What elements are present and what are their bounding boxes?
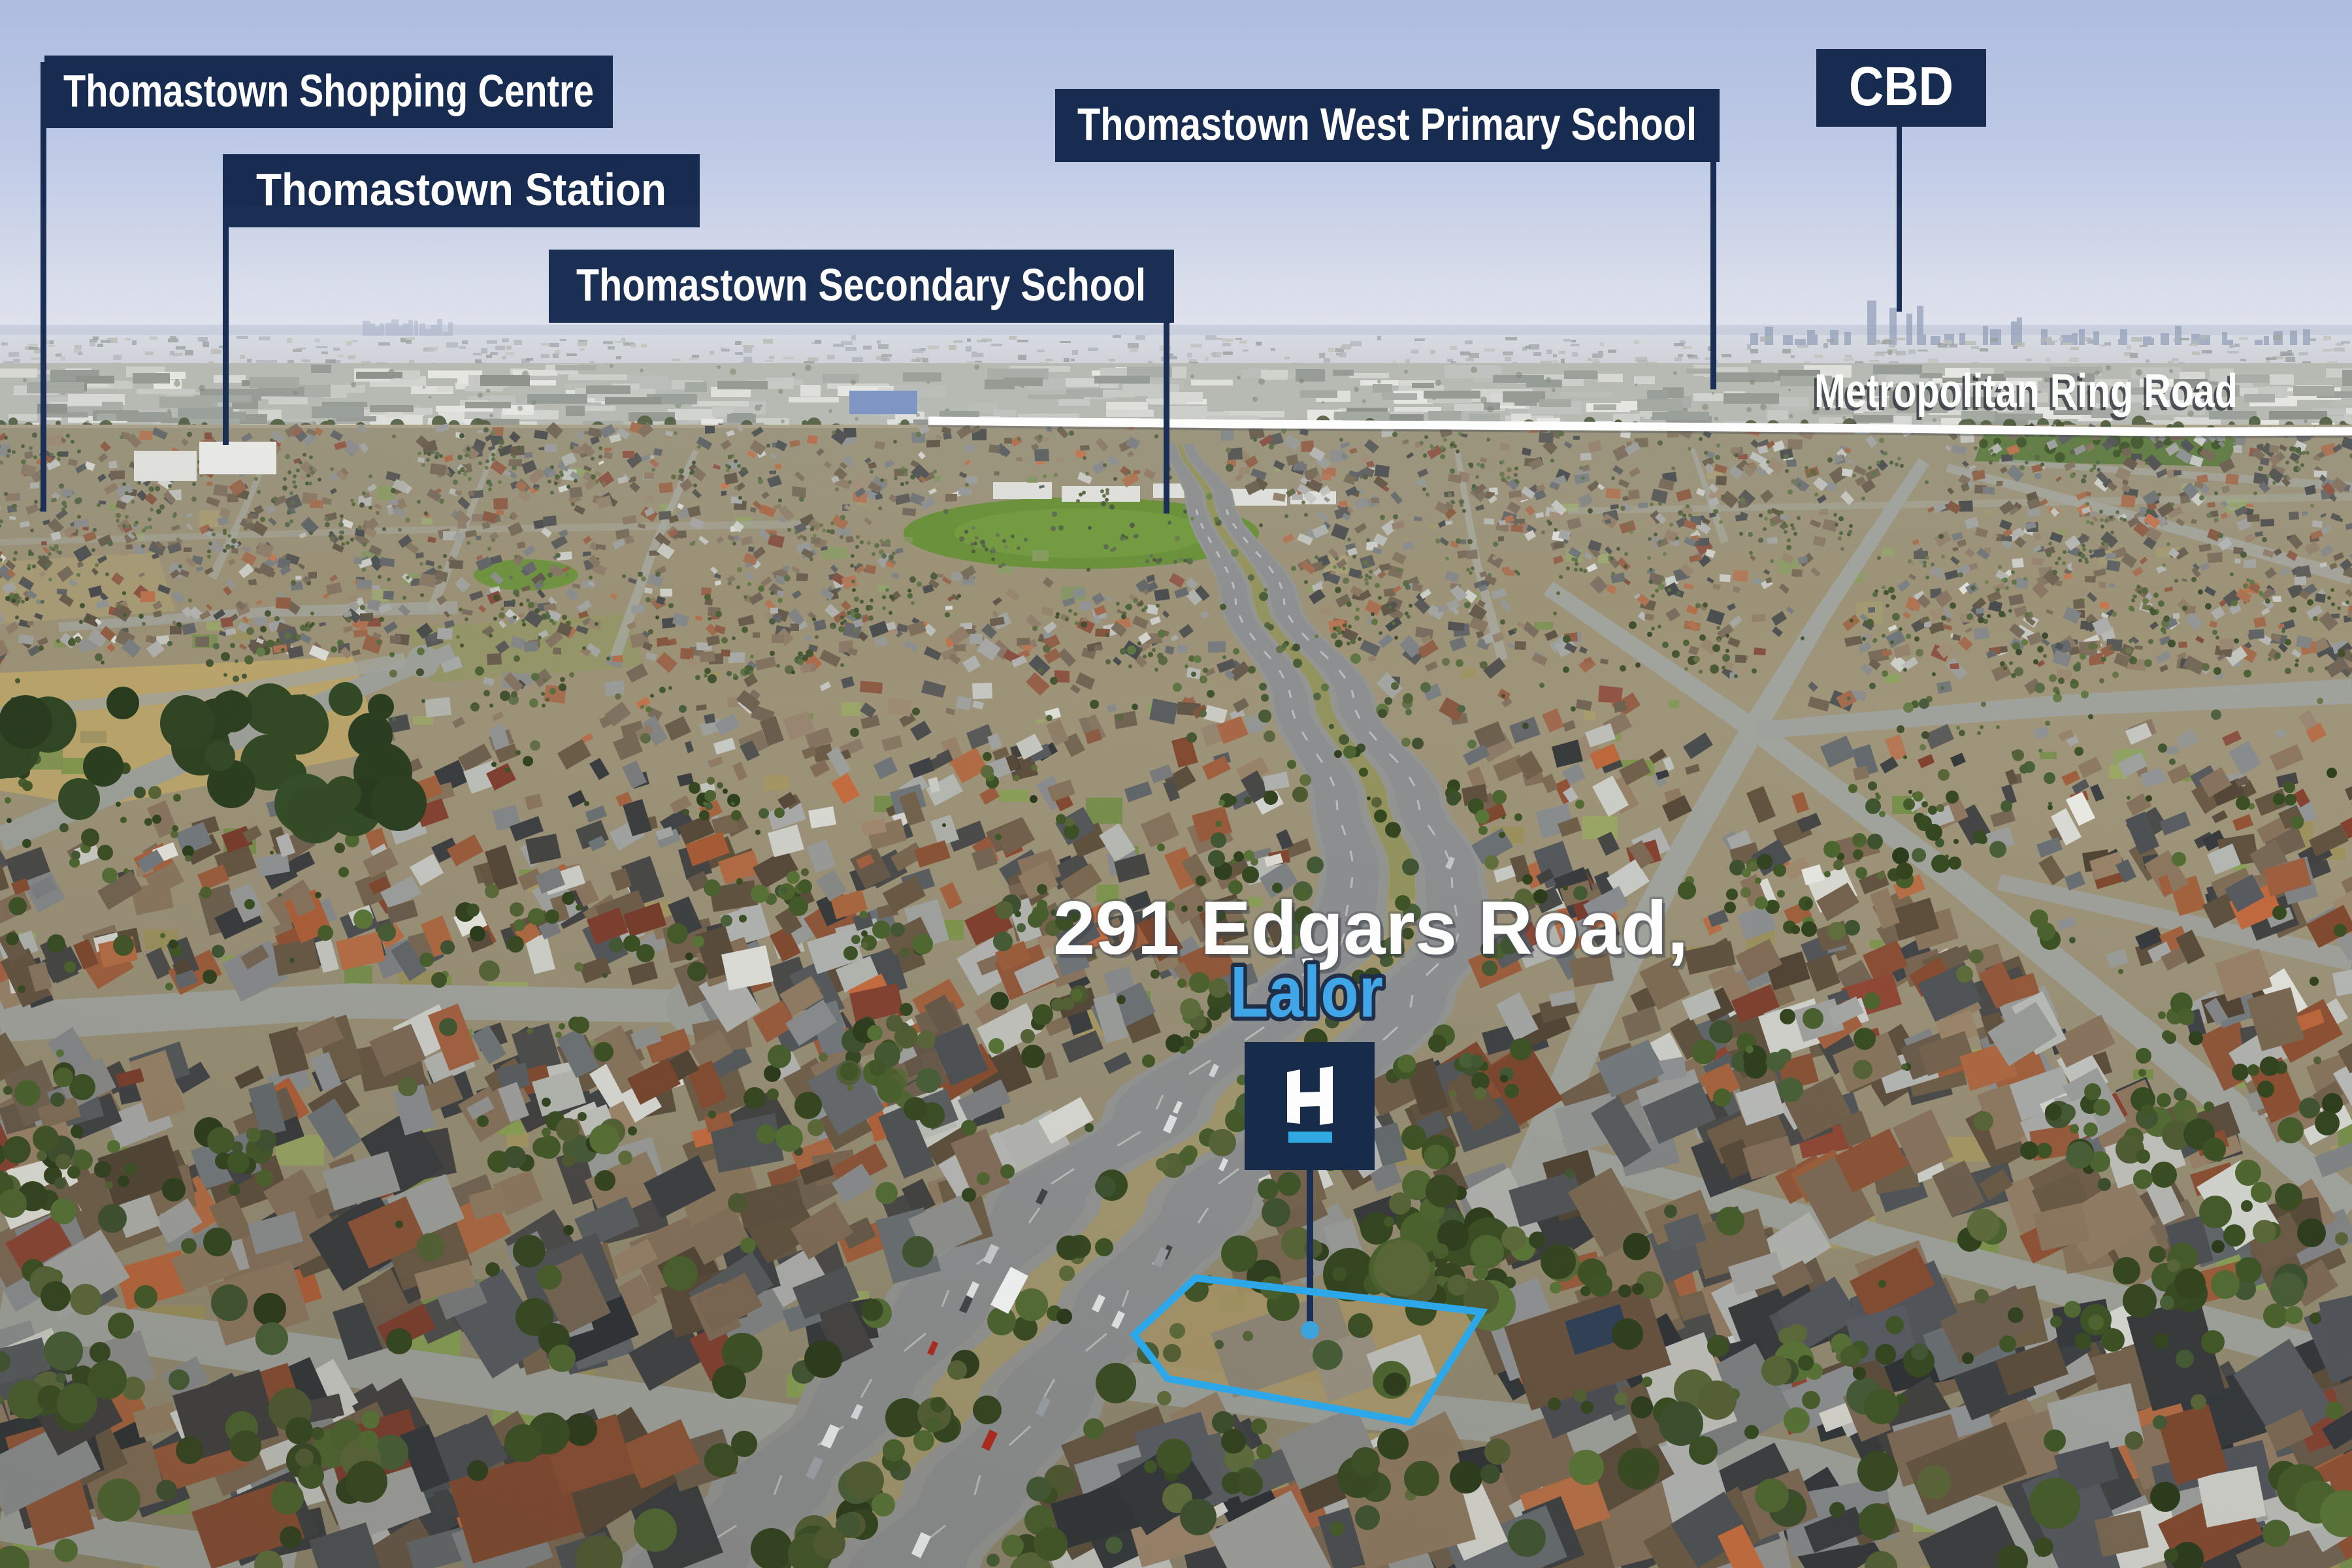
svg-text:Thomastown Secondary School: Thomastown Secondary School (576, 259, 1146, 310)
svg-text:Thomastown Shopping Centre: Thomastown Shopping Centre (63, 65, 594, 116)
svg-text:CBD: CBD (1849, 56, 1953, 117)
svg-text:Thomastown West Primary School: Thomastown West Primary School (1077, 99, 1697, 150)
svg-text:Thomastown Station: Thomastown Station (256, 164, 666, 215)
